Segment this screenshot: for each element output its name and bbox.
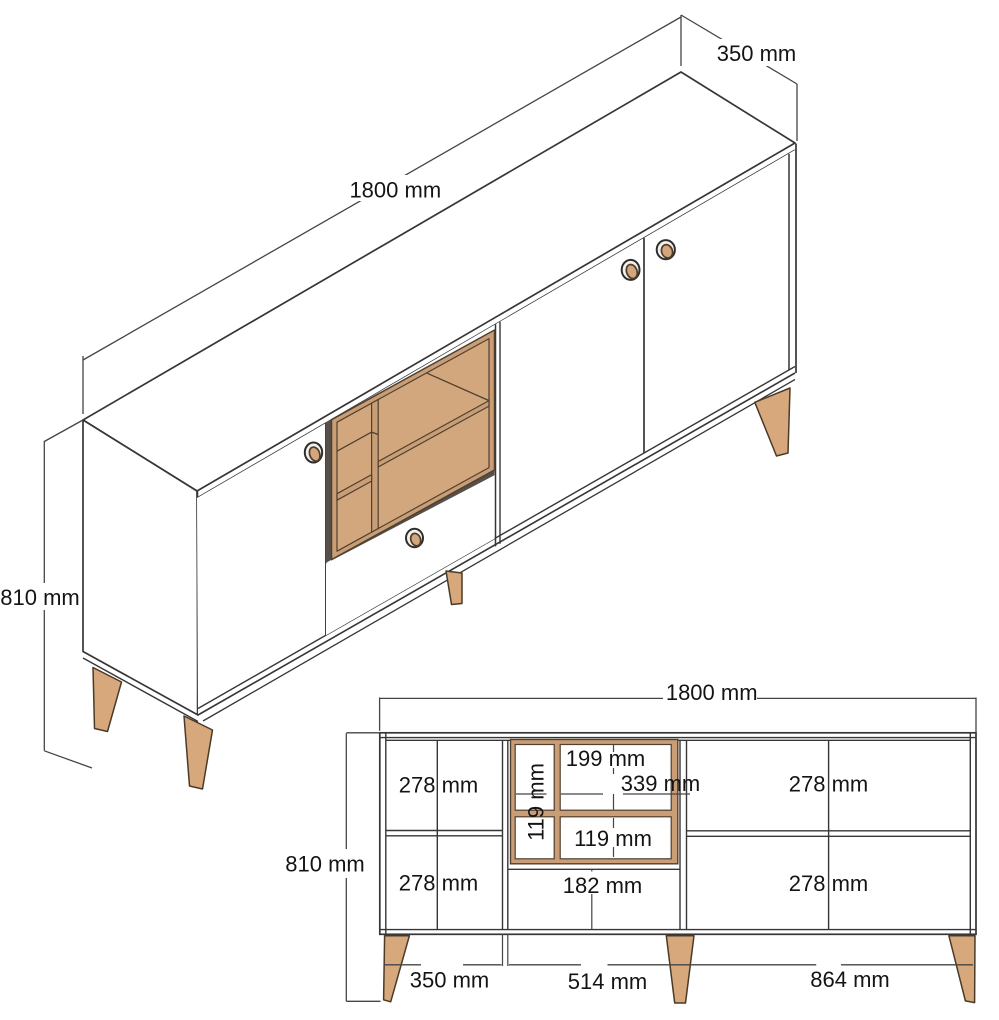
svg-text:339 mm: 339 mm	[621, 771, 700, 796]
svg-text:278 mm: 278 mm	[399, 871, 478, 896]
svg-text:199 mm: 199 mm	[566, 746, 645, 771]
svg-text:182 mm: 182 mm	[563, 873, 642, 898]
svg-text:278 mm: 278 mm	[399, 773, 478, 798]
svg-text:278 mm: 278 mm	[789, 772, 868, 797]
svg-text:350 mm: 350 mm	[410, 968, 489, 993]
svg-text:119 mm: 119 mm	[574, 826, 652, 851]
svg-text:810 mm: 810 mm	[285, 852, 364, 877]
svg-text:864 mm: 864 mm	[810, 967, 889, 992]
svg-text:514 mm: 514 mm	[568, 969, 647, 994]
svg-text:119 mm: 119 mm	[524, 763, 549, 841]
svg-text:278 mm: 278 mm	[789, 871, 868, 896]
svg-text:1800 mm: 1800 mm	[349, 178, 441, 203]
svg-text:350 mm: 350 mm	[717, 41, 796, 66]
svg-text:1800 mm: 1800 mm	[666, 680, 758, 705]
svg-text:810 mm: 810 mm	[0, 585, 79, 610]
